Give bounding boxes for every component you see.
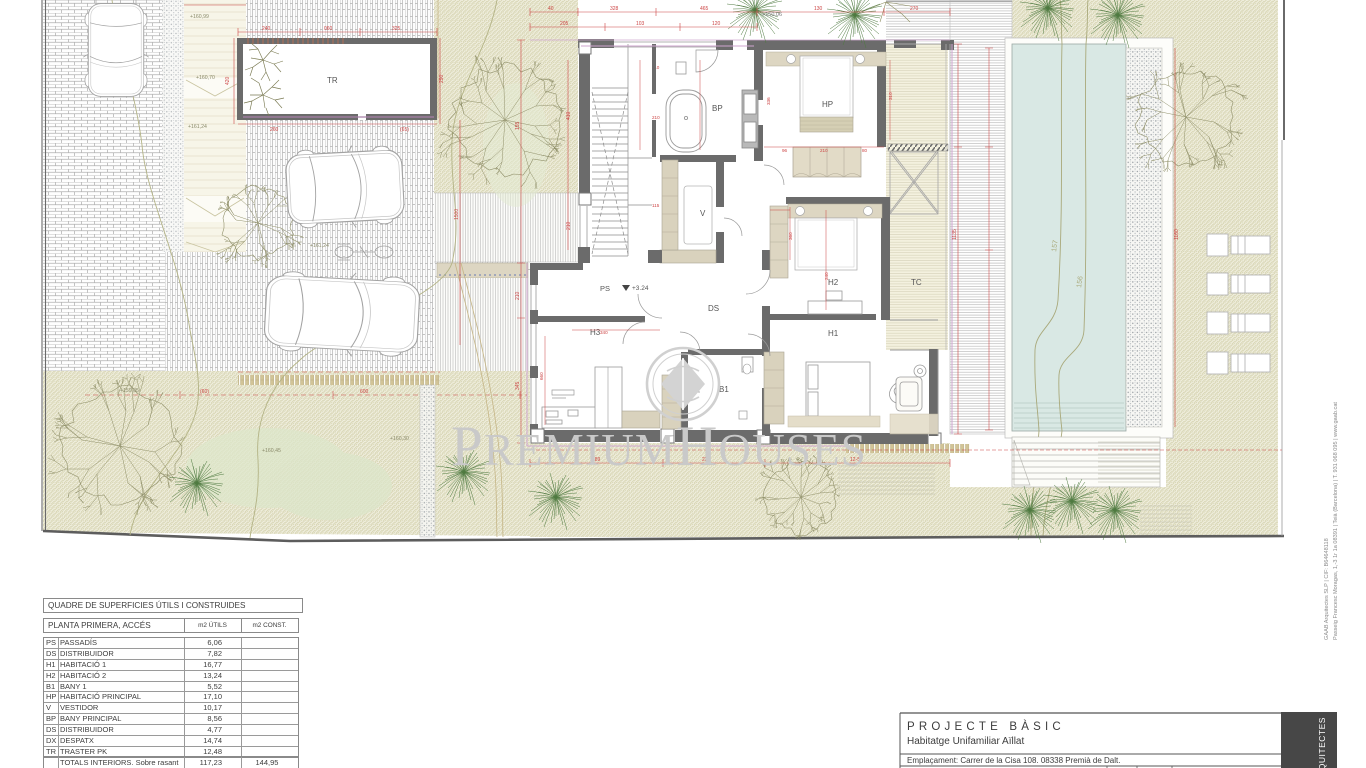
svg-text:H1: H1 — [828, 329, 839, 338]
svg-text:PREMIUMHOUSES: PREMIUMHOUSES — [451, 415, 867, 478]
svg-text:260: 260 — [270, 127, 279, 133]
svg-text:ARQUITECTES: ARQUITECTES — [1317, 717, 1327, 768]
svg-text:+160,30: +160,30 — [390, 436, 409, 442]
svg-text:1500: 1500 — [454, 209, 460, 220]
svg-text:(65): (65) — [400, 127, 409, 133]
svg-text:290: 290 — [439, 74, 445, 83]
svg-text:+161,24: +161,24 — [188, 124, 207, 130]
svg-text:PROJECTE BÀSIC: PROJECTE BÀSIC — [907, 720, 1065, 733]
svg-text:210: 210 — [820, 148, 828, 153]
svg-text:410: 410 — [566, 111, 572, 120]
svg-text:Emplaçament: Carrer de la Cisa: Emplaçament: Carrer de la Cisa 108. 0833… — [907, 756, 1120, 765]
svg-text:+159,85: +159,85 — [120, 388, 139, 394]
svg-text:Passeig Francesc Moragas, 1,-3: Passeig Francesc Moragas, 1,-3 1r 1a 083… — [1333, 402, 1339, 640]
svg-text:40: 40 — [548, 6, 554, 12]
svg-text:+160,70: +160,70 — [196, 75, 215, 81]
svg-text:210: 210 — [652, 115, 660, 120]
svg-text:115: 115 — [652, 203, 660, 208]
svg-text:HP: HP — [822, 100, 833, 109]
svg-text:Habitatge Unifamiliar Aïllat: Habitatge Unifamiliar Aïllat — [907, 736, 1024, 747]
svg-text:325: 325 — [392, 26, 401, 32]
svg-text:(60): (60) — [200, 389, 209, 395]
svg-text:H2: H2 — [828, 278, 839, 287]
svg-text:96: 96 — [782, 148, 788, 153]
svg-text:103: 103 — [636, 21, 645, 27]
svg-text:BP: BP — [712, 104, 723, 113]
svg-text:TR: TR — [327, 76, 338, 85]
svg-text:V: V — [700, 209, 706, 218]
svg-text:+150,06: +150,06 — [762, 12, 782, 18]
svg-text:1160: 1160 — [1174, 229, 1180, 240]
svg-text:660: 660 — [539, 372, 544, 380]
svg-text:240: 240 — [824, 272, 829, 280]
svg-text:DS: DS — [708, 304, 719, 313]
svg-text:GAAB Arquitectes SLP | CIF: B6: GAAB Arquitectes SLP | CIF: B64648118 — [1324, 538, 1330, 640]
svg-text:360: 360 — [788, 232, 793, 240]
svg-text:+160,45: +160,45 — [262, 448, 281, 454]
svg-text:345: 345 — [515, 381, 521, 390]
svg-text:600: 600 — [360, 389, 369, 395]
svg-text:TC: TC — [911, 278, 922, 287]
svg-text:+3.24: +3.24 — [632, 285, 649, 292]
svg-text:465: 465 — [700, 6, 709, 12]
svg-text:B1: B1 — [719, 385, 729, 394]
svg-text:270: 270 — [910, 6, 919, 12]
svg-text:240: 240 — [262, 26, 271, 32]
svg-text:205: 205 — [560, 21, 569, 27]
svg-text:328: 328 — [610, 6, 619, 12]
svg-text:420: 420 — [225, 76, 231, 85]
svg-text:+161,24: +161,24 — [310, 243, 329, 249]
svg-text:80: 80 — [862, 148, 868, 153]
svg-text:336: 336 — [766, 97, 771, 105]
svg-text:155: 155 — [515, 121, 521, 130]
svg-text:130: 130 — [814, 6, 823, 12]
svg-text:210: 210 — [515, 291, 521, 300]
svg-text:1135: 1135 — [952, 229, 958, 240]
svg-text:310: 310 — [888, 92, 893, 100]
svg-text:210: 210 — [566, 221, 572, 230]
svg-text:340: 340 — [600, 330, 608, 335]
svg-text:060: 060 — [324, 26, 333, 32]
svg-text:PS: PS — [600, 284, 610, 293]
svg-text:+160,99: +160,99 — [190, 14, 209, 20]
svg-text:120: 120 — [712, 21, 721, 27]
